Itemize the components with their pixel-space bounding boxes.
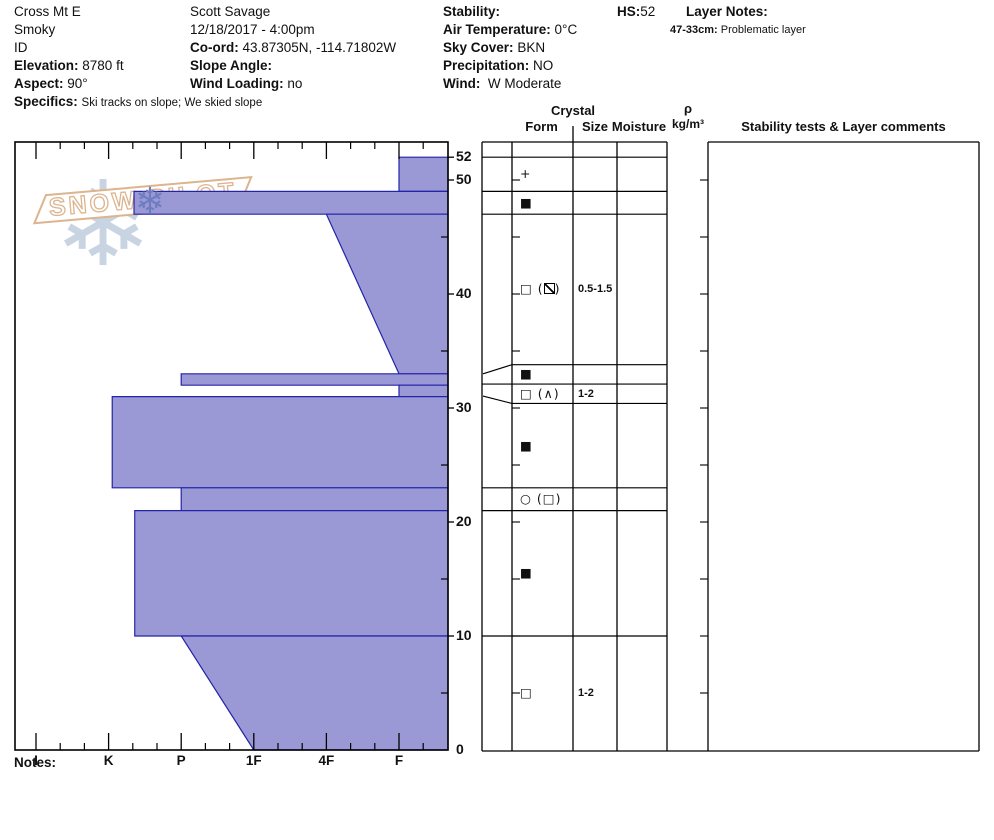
hardness-axis-label: K — [94, 753, 124, 768]
grain-form-symbol: ■ — [520, 195, 533, 211]
layer-polygon — [399, 157, 448, 191]
grain-form-symbol: ○ (□) — [520, 491, 561, 507]
snow-profile-chart: ❄SNOW PILOT❄ — [0, 0, 994, 840]
hardness-axis-label: I — [21, 753, 51, 768]
grain-size-value: 1-2 — [578, 388, 594, 400]
grain-size-value: 1-2 — [578, 687, 594, 699]
layer-polygon — [135, 511, 448, 636]
depth-axis-label: 50 — [456, 171, 472, 187]
depth-axis-label: 40 — [456, 285, 472, 301]
grain-form-symbol: ■ — [520, 438, 533, 454]
grain-size-value: 0.5-1.5 — [578, 283, 612, 295]
leader-line — [483, 396, 512, 403]
snowpilot-report: Cross Mt E Smoky ID Elevation: 8780 ft A… — [0, 0, 994, 840]
layer-polygon — [326, 214, 448, 374]
hardness-axis-label: F — [384, 753, 414, 768]
depth-axis-label: 30 — [456, 399, 472, 415]
layer-polygon — [112, 397, 448, 488]
grain-form-symbol: ■ — [520, 366, 533, 382]
hardness-axis-label: 1F — [239, 753, 269, 768]
layer-polygon — [181, 488, 448, 511]
grain-form-symbol: ■ — [520, 565, 533, 581]
depth-axis-label: 0 — [456, 741, 464, 757]
depth-axis-label: 10 — [456, 627, 472, 643]
layer-polygon — [399, 385, 448, 396]
hardness-axis-label: 4F — [311, 753, 341, 768]
layer-polygon — [181, 636, 448, 750]
hardness-axis-label: P — [166, 753, 196, 768]
grain-form-symbol: □ () — [520, 281, 561, 297]
grain-form-symbol: + — [520, 166, 531, 182]
depth-axis-label: 52 — [456, 148, 472, 164]
snowflake-overlay-icon: ❄ — [135, 181, 165, 222]
depth-axis-label: 20 — [456, 513, 472, 529]
snowflake-icon: ❄ — [54, 155, 153, 293]
layer-polygon — [181, 374, 448, 385]
layer-polygon — [134, 191, 448, 214]
leader-line — [483, 365, 512, 374]
grain-form-symbol: □ — [520, 685, 533, 701]
grain-form-symbol: □ (∧) — [520, 386, 560, 402]
